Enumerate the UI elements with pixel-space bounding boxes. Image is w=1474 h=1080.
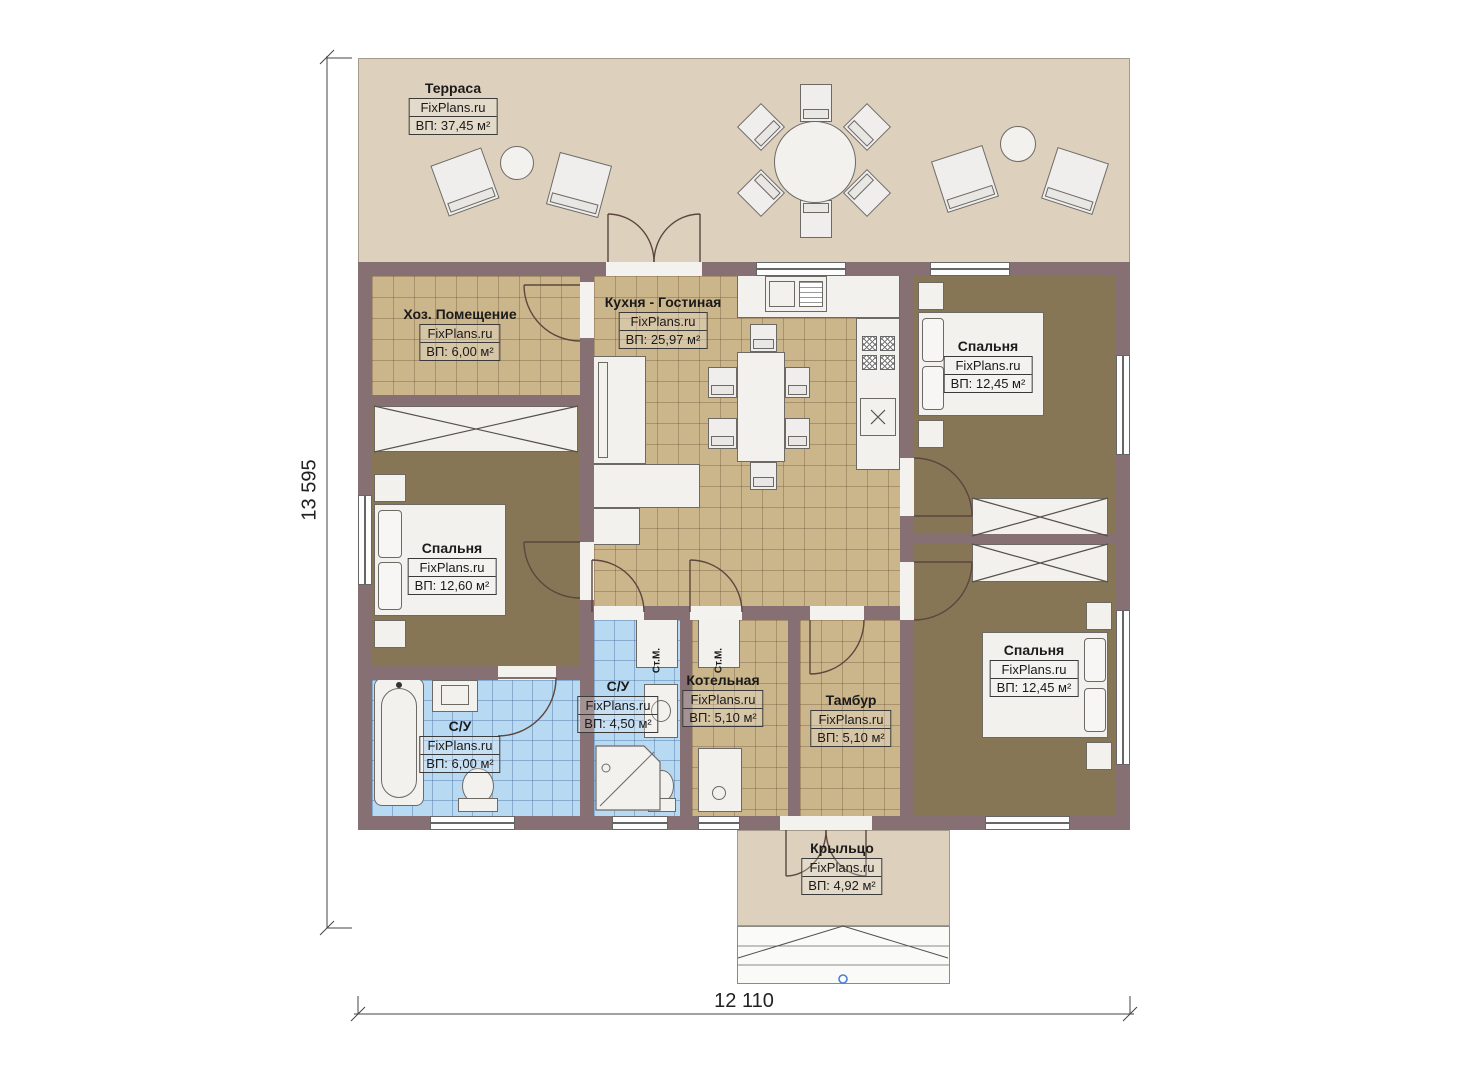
door-swing xyxy=(592,560,644,612)
room-info-box: FixPlans.ru ВП: 6,00 м² xyxy=(419,324,500,361)
room-site: FixPlans.ru xyxy=(420,737,499,754)
room-site: FixPlans.ru xyxy=(420,325,499,342)
door-swing xyxy=(914,562,972,620)
room-site: FixPlans.ru xyxy=(811,711,890,728)
room-area: ВП: 5,10 м² xyxy=(683,708,762,726)
room-site: FixPlans.ru xyxy=(620,313,707,330)
door-swing xyxy=(810,620,864,674)
room-site: FixPlans.ru xyxy=(991,661,1078,678)
room-area: ВП: 37,45 м² xyxy=(410,116,497,134)
room-label-utility: Хоз. Помещение FixPlans.ru ВП: 6,00 м² xyxy=(403,306,516,361)
room-area: ВП: 6,00 м² xyxy=(420,342,499,360)
room-site: FixPlans.ru xyxy=(410,99,497,116)
room-site: FixPlans.ru xyxy=(578,697,657,714)
room-name: Тамбур xyxy=(810,692,891,708)
room-name: Котельная xyxy=(682,672,763,688)
room-info-box: FixPlans.ru ВП: 12,45 м² xyxy=(990,660,1079,697)
room-site: FixPlans.ru xyxy=(409,559,496,576)
wardrobe-cross xyxy=(972,544,1108,582)
room-name: Спальня xyxy=(990,642,1079,658)
room-name: Кухня - Гостиная xyxy=(605,294,722,310)
room-area: ВП: 5,10 м² xyxy=(811,728,890,746)
room-label-vestibule: Тамбур FixPlans.ru ВП: 5,10 м² xyxy=(810,692,891,747)
room-area: ВП: 4,50 м² xyxy=(578,714,657,732)
room-info-box: FixPlans.ru ВП: 12,45 м² xyxy=(944,356,1033,393)
room-info-box: FixPlans.ru ВП: 4,92 м² xyxy=(801,858,882,895)
room-label-porch: Крыльцо FixPlans.ru ВП: 4,92 м² xyxy=(801,840,882,895)
room-label-bedroom-bottomright: Спальня FixPlans.ru ВП: 12,45 м² xyxy=(990,642,1079,697)
door-swing xyxy=(498,678,556,736)
room-name: Спальня xyxy=(944,338,1033,354)
room-area: ВП: 12,60 м² xyxy=(409,576,496,594)
room-info-box: FixPlans.ru ВП: 4,50 м² xyxy=(577,696,658,733)
door-swing xyxy=(914,458,972,516)
wardrobe-cross xyxy=(972,498,1108,536)
floor-plan-page: { "plan": { "rooms": [ {"name": "Терраса… xyxy=(0,0,1474,1080)
room-site: FixPlans.ru xyxy=(945,357,1032,374)
room-info-box: FixPlans.ru ВП: 37,45 м² xyxy=(409,98,498,135)
room-site: FixPlans.ru xyxy=(683,691,762,708)
room-name: Крыльцо xyxy=(801,840,882,856)
room-name: Спальня xyxy=(408,540,497,556)
room-label-bath-center: С/У FixPlans.ru ВП: 4,50 м² xyxy=(577,678,658,733)
room-name: Хоз. Помещение xyxy=(403,306,516,322)
door-swing xyxy=(524,542,580,598)
room-info-box: FixPlans.ru ВП: 25,97 м² xyxy=(619,312,708,349)
door-swing xyxy=(690,560,742,612)
porch-step-lines xyxy=(737,926,950,965)
room-area: ВП: 4,92 м² xyxy=(802,876,881,894)
room-area: ВП: 12,45 м² xyxy=(991,678,1078,696)
door-swing xyxy=(654,214,700,262)
plan-linework xyxy=(0,0,1474,1080)
room-label-bath-left: С/У FixPlans.ru ВП: 6,00 м² xyxy=(419,718,500,773)
room-label-bedroom-topright: Спальня FixPlans.ru ВП: 12,45 м² xyxy=(944,338,1033,393)
room-name: Терраса xyxy=(409,80,498,96)
wardrobe-cross xyxy=(374,406,578,452)
room-info-box: FixPlans.ru ВП: 5,10 м² xyxy=(810,710,891,747)
cabinet-x-mark xyxy=(871,410,885,424)
room-label-terrace: Терраса FixPlans.ru ВП: 37,45 м² xyxy=(409,80,498,135)
room-label-boiler: Котельная FixPlans.ru ВП: 5,10 м² xyxy=(682,672,763,727)
room-name: С/У xyxy=(419,718,500,734)
shower-icon xyxy=(596,746,660,810)
room-info-box: FixPlans.ru ВП: 6,00 м² xyxy=(419,736,500,773)
room-label-bedroom-left: Спальня FixPlans.ru ВП: 12,60 м² xyxy=(408,540,497,595)
room-name: С/У xyxy=(577,678,658,694)
room-site: FixPlans.ru xyxy=(802,859,881,876)
room-label-kitchen-living: Кухня - Гостиная FixPlans.ru ВП: 25,97 м… xyxy=(605,294,722,349)
room-info-box: FixPlans.ru ВП: 12,60 м² xyxy=(408,558,497,595)
dimension-lines xyxy=(320,50,1137,1021)
room-area: ВП: 12,45 м² xyxy=(945,374,1032,392)
door-swing xyxy=(524,285,580,341)
room-info-box: FixPlans.ru ВП: 5,10 м² xyxy=(682,690,763,727)
room-area: ВП: 25,97 м² xyxy=(620,330,707,348)
room-area: ВП: 6,00 м² xyxy=(420,754,499,772)
door-swing xyxy=(608,214,654,262)
step-marker-dot xyxy=(839,975,847,983)
